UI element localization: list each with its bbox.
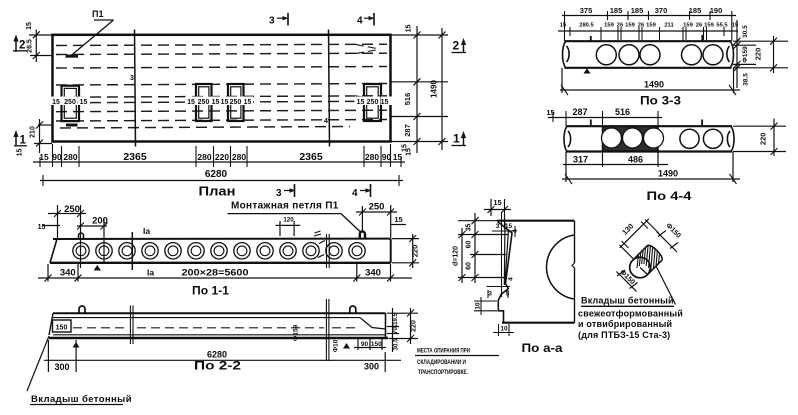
svg-text:250: 250 <box>198 99 210 106</box>
svg-text:4: 4 <box>508 277 515 281</box>
svg-text:6280: 6280 <box>205 169 228 180</box>
svg-text:35: 35 <box>466 224 473 232</box>
svg-text:1: 1 <box>20 135 27 147</box>
svg-text:340: 340 <box>60 268 76 279</box>
svg-text:70: 70 <box>393 327 399 334</box>
svg-text:1490: 1490 <box>644 80 664 90</box>
svg-text:1: 1 <box>453 132 460 146</box>
svg-text:По 3-3: По 3-3 <box>640 96 681 108</box>
svg-text:d=120: d=120 <box>453 246 460 266</box>
svg-text:МЕСТА ОПИРАНИЯ ПРИ: МЕСТА ОПИРАНИЯ ПРИ <box>417 348 470 355</box>
svg-text:ТРАНСПОРТИРОВКЕ.: ТРАНСПОРТИРОВКЕ. <box>418 369 468 376</box>
svg-text:2365: 2365 <box>299 151 323 163</box>
svg-text:26: 26 <box>617 23 624 29</box>
svg-text:185: 185 <box>610 6 623 15</box>
svg-text:200×28=5600: 200×28=5600 <box>182 268 249 279</box>
svg-text:По а-а: По а-а <box>522 341 563 355</box>
svg-text:15: 15 <box>212 99 220 106</box>
svg-text:26.5: 26.5 <box>26 39 33 53</box>
svg-text:287: 287 <box>572 107 587 117</box>
svg-text:280: 280 <box>232 152 246 162</box>
svg-text:119.5: 119.5 <box>393 312 399 327</box>
svg-text:317: 317 <box>573 155 588 165</box>
svg-text:120: 120 <box>283 217 294 224</box>
svg-text:30.5: 30.5 <box>394 338 400 350</box>
svg-text:159: 159 <box>683 23 693 29</box>
svg-text:220: 220 <box>754 48 763 61</box>
svg-text:(для ПТБЗ-15 Ста-3): (для ПТБЗ-15 Ста-3) <box>578 330 670 340</box>
svg-text:60: 60 <box>466 241 473 249</box>
svg-text:3: 3 <box>130 75 134 82</box>
svg-text:15: 15 <box>406 25 413 33</box>
svg-text:15: 15 <box>17 149 24 157</box>
svg-text:15: 15 <box>52 99 60 106</box>
svg-text:Ф159: Ф159 <box>293 324 300 341</box>
svg-text:Монтажная петля П1: Монтажная петля П1 <box>231 201 339 212</box>
svg-text:10: 10 <box>500 326 508 333</box>
svg-text:10: 10 <box>475 302 482 310</box>
svg-text:Iа: Iа <box>147 268 154 278</box>
svg-text:15: 15 <box>732 23 739 29</box>
svg-text:340: 340 <box>365 268 381 279</box>
svg-text:300: 300 <box>54 362 69 372</box>
svg-text:55.5: 55.5 <box>716 23 728 29</box>
svg-text:300: 300 <box>364 362 379 372</box>
svg-text:15: 15 <box>393 152 403 162</box>
svg-text:26: 26 <box>638 23 645 29</box>
svg-text:190: 190 <box>710 6 723 15</box>
svg-text:30.5: 30.5 <box>742 25 749 38</box>
svg-text:280: 280 <box>365 152 379 162</box>
svg-text:200: 200 <box>92 216 108 227</box>
svg-text:185: 185 <box>689 6 702 15</box>
svg-text:15: 15 <box>406 148 413 156</box>
svg-text:4: 4 <box>324 118 328 125</box>
svg-text:15: 15 <box>38 224 46 231</box>
svg-text:60: 60 <box>466 262 473 270</box>
svg-text:159: 159 <box>646 23 656 29</box>
svg-text:250: 250 <box>64 204 80 215</box>
svg-text:15: 15 <box>187 99 195 106</box>
svg-text:2: 2 <box>19 40 25 52</box>
svg-text:38.5: 38.5 <box>743 73 750 86</box>
svg-text:15: 15 <box>357 99 365 106</box>
svg-text:2: 2 <box>453 39 460 53</box>
svg-text:15: 15 <box>546 108 554 117</box>
svg-text:220: 220 <box>215 152 229 162</box>
svg-text:3: 3 <box>488 291 492 298</box>
svg-text:Ф150: Ф150 <box>618 269 636 287</box>
svg-text:26: 26 <box>696 23 703 29</box>
svg-text:90: 90 <box>52 152 62 162</box>
svg-text:15: 15 <box>505 223 513 230</box>
svg-text:220: 220 <box>759 133 768 146</box>
svg-text:свежеотформованный: свежеотформованный <box>578 309 683 319</box>
svg-text:15: 15 <box>244 99 252 106</box>
svg-text:486: 486 <box>628 155 643 165</box>
svg-text:Ф10: Ф10 <box>333 339 340 352</box>
svg-text:185: 185 <box>631 6 644 15</box>
svg-text:П1: П1 <box>92 9 103 19</box>
svg-text:516: 516 <box>403 93 412 106</box>
svg-text:159: 159 <box>625 23 635 29</box>
svg-text:250: 250 <box>64 99 76 106</box>
svg-text:1490: 1490 <box>658 169 678 179</box>
svg-text:4: 4 <box>352 188 358 199</box>
svg-text:220: 220 <box>411 320 418 332</box>
svg-text:250: 250 <box>367 99 379 106</box>
svg-text:370: 370 <box>655 6 668 15</box>
svg-text:Ф159: Ф159 <box>742 46 749 63</box>
svg-text:210: 210 <box>30 126 37 138</box>
svg-text:159: 159 <box>704 23 714 29</box>
svg-text:250: 250 <box>369 202 385 213</box>
svg-text:По 4-4: По 4-4 <box>647 191 693 203</box>
svg-text:15: 15 <box>394 215 402 224</box>
svg-text:15: 15 <box>493 198 501 207</box>
svg-text:211: 211 <box>664 23 674 29</box>
svg-text:90: 90 <box>361 341 369 348</box>
svg-text:280: 280 <box>197 152 211 162</box>
svg-text:15: 15 <box>39 152 49 162</box>
svg-text:15: 15 <box>381 99 389 106</box>
svg-text:По 2-2: По 2-2 <box>194 359 241 373</box>
svg-text:15: 15 <box>26 22 33 30</box>
svg-text:Ф150: Ф150 <box>664 222 682 240</box>
svg-text:150: 150 <box>371 341 382 348</box>
svg-text:1490: 1490 <box>430 80 439 98</box>
svg-text:15: 15 <box>80 99 88 106</box>
svg-text:220: 220 <box>411 245 420 258</box>
svg-text:90: 90 <box>382 152 392 162</box>
svg-text:280.5: 280.5 <box>579 23 594 29</box>
svg-text:250: 250 <box>230 99 242 106</box>
svg-text:3: 3 <box>496 223 500 230</box>
svg-text:Вкладыш бетонный: Вкладыш бетонный <box>581 296 674 306</box>
svg-text:150: 150 <box>56 325 68 332</box>
svg-text:287: 287 <box>403 124 412 137</box>
svg-text:516: 516 <box>615 107 630 117</box>
svg-text:Iа: Iа <box>143 226 150 236</box>
svg-text:и отвибрированный: и отвибрированный <box>578 319 672 329</box>
svg-text:3: 3 <box>269 16 275 27</box>
svg-text:По 1-1: По 1-1 <box>192 284 229 298</box>
svg-text:375: 375 <box>580 6 593 15</box>
svg-text:4: 4 <box>357 16 363 27</box>
svg-text:159: 159 <box>604 23 614 29</box>
svg-text:Вкладыш бетонный: Вкладыш бетонный <box>31 394 132 405</box>
svg-text:15: 15 <box>221 99 229 106</box>
svg-text:2365: 2365 <box>123 151 147 163</box>
svg-text:280: 280 <box>63 152 77 162</box>
svg-text:3: 3 <box>276 188 282 199</box>
svg-text:СКЛАДИРОВАНИИ И: СКЛАДИРОВАНИИ И <box>417 359 466 366</box>
svg-text:15: 15 <box>560 23 567 29</box>
svg-text:План: План <box>199 184 236 199</box>
